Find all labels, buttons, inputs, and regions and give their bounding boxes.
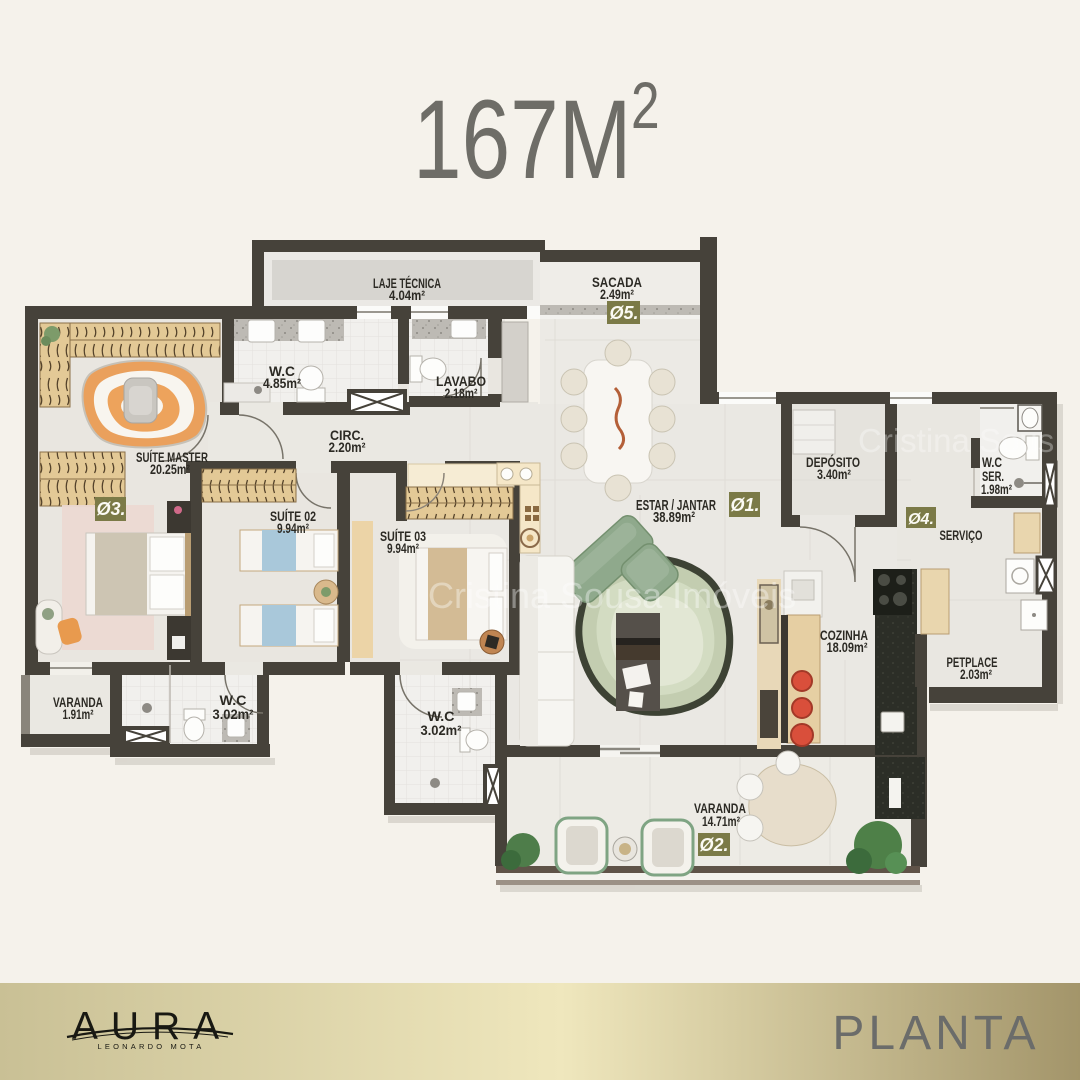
svg-text:1.98m²: 1.98m² bbox=[981, 482, 1012, 497]
svg-text:18.09m²: 18.09m² bbox=[827, 640, 868, 655]
svg-text:2.49m²: 2.49m² bbox=[600, 287, 634, 302]
svg-text:167M: 167M bbox=[413, 78, 631, 203]
svg-text:Ø4.: Ø4. bbox=[908, 511, 934, 528]
svg-text:2: 2 bbox=[631, 68, 660, 143]
svg-text:2.20m²: 2.20m² bbox=[329, 440, 366, 455]
svg-text:3.02m²: 3.02m² bbox=[213, 707, 254, 722]
svg-text:W.C: W.C bbox=[428, 709, 455, 724]
svg-text:9.94m²: 9.94m² bbox=[277, 521, 309, 536]
svg-text:3.02m²: 3.02m² bbox=[421, 723, 462, 738]
svg-text:PLANTA: PLANTA bbox=[832, 1007, 1039, 1060]
svg-text:LEONARDO MOTA: LEONARDO MOTA bbox=[98, 1042, 205, 1051]
svg-text:9.94m²: 9.94m² bbox=[387, 541, 419, 556]
svg-text:14.71m²: 14.71m² bbox=[702, 814, 740, 829]
svg-text:4.04m²: 4.04m² bbox=[389, 288, 425, 303]
svg-text:2.03m²: 2.03m² bbox=[960, 667, 992, 682]
svg-text:Ø5.: Ø5. bbox=[609, 303, 638, 323]
svg-text:Ø3.: Ø3. bbox=[96, 499, 125, 519]
svg-text:Cristina Sous: Cristina Sous bbox=[858, 422, 1054, 459]
svg-text:38.89m²: 38.89m² bbox=[653, 509, 695, 526]
svg-text:2.18m²: 2.18m² bbox=[445, 386, 478, 401]
svg-text:Cristina Sousa Imóveis: Cristina Sousa Imóveis bbox=[428, 575, 796, 616]
svg-text:SERVIÇO: SERVIÇO bbox=[940, 528, 983, 543]
svg-text:20.25m²: 20.25m² bbox=[150, 462, 190, 477]
svg-text:4.85m²: 4.85m² bbox=[263, 376, 301, 391]
svg-text:W.C: W.C bbox=[220, 693, 247, 708]
svg-text:Ø2.: Ø2. bbox=[699, 835, 728, 855]
svg-text:3.40m²: 3.40m² bbox=[817, 467, 851, 482]
svg-text:Ø1.: Ø1. bbox=[730, 495, 759, 515]
svg-text:1.91m²: 1.91m² bbox=[63, 707, 94, 722]
